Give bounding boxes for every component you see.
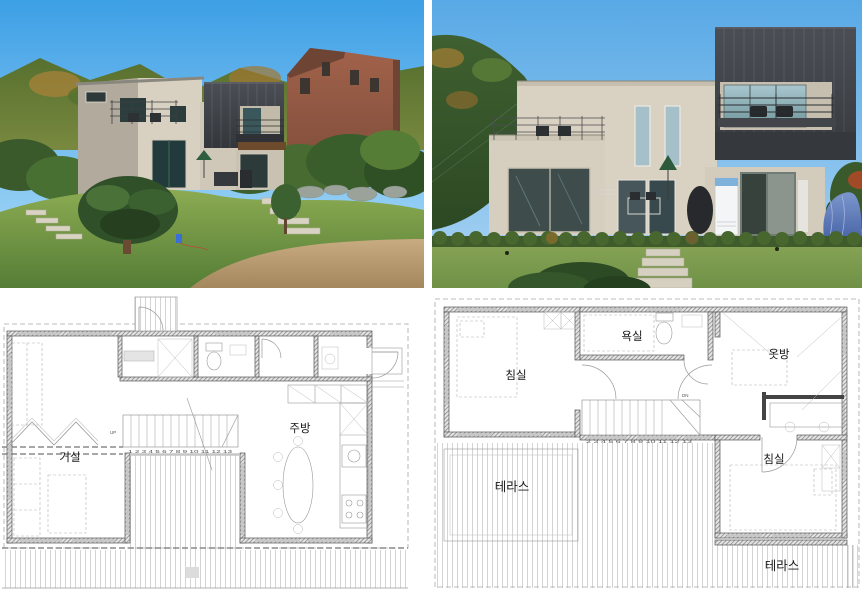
floor-plan-first: UP 1 2 3 4 5 6 7 8 9 10 11 12 13 거실 주방 — [0, 295, 424, 593]
room-label-bathroom: 욕실 — [621, 330, 642, 343]
photo-front-svg — [432, 0, 862, 288]
living-room: 거실 — [10, 343, 98, 536]
toilet-tank — [656, 313, 673, 321]
dining-table — [283, 447, 313, 523]
deck-areas — [2, 455, 408, 588]
bathroom: 욕실 — [584, 313, 702, 351]
toilet — [656, 322, 672, 344]
sink — [682, 315, 702, 327]
up-label: UP — [110, 430, 116, 435]
room-label-bedroom2: 침실 — [763, 453, 784, 466]
bedroom-right: 침실 — [730, 445, 840, 530]
room-label-living: 거실 — [59, 451, 80, 464]
floor-plan-first-svg: UP 1 2 3 4 5 6 7 8 9 10 11 12 13 거실 주방 — [0, 295, 424, 593]
room-label-terrace1: 테라스 — [495, 480, 530, 494]
room-label-bedroom1: 침실 — [505, 369, 526, 382]
photo-front-view — [432, 0, 862, 288]
floor-plan-second: DN 2 3 4 5 6 7 8 9 10 11 12 13 침실 욕실 — [432, 295, 862, 593]
desk — [770, 403, 844, 427]
room-label-terrace2: 테라스 — [765, 559, 800, 573]
washer — [322, 347, 338, 369]
sink — [230, 345, 246, 355]
dressing-room: 옷방 — [722, 312, 847, 432]
side-porch — [372, 348, 404, 387]
room-label-dressing: 옷방 — [768, 348, 790, 361]
floor-plan-second-svg: DN 2 3 4 5 6 7 8 9 10 11 12 13 침실 욕실 — [432, 295, 862, 593]
toilet — [207, 352, 221, 370]
house — [76, 78, 286, 196]
entry-porch — [135, 297, 177, 331]
bed — [730, 465, 836, 530]
display-fridge — [715, 178, 738, 235]
stair-numbers: 2 3 4 5 6 7 8 9 10 11 12 13 — [586, 439, 693, 444]
dn-label: DN — [682, 393, 689, 398]
small-window — [86, 92, 106, 102]
room-label-kitchen: 주방 — [289, 422, 311, 435]
bed — [457, 317, 517, 397]
stair-numbers: 1 2 3 4 5 6 7 8 9 10 11 12 13 — [128, 449, 233, 454]
wing-window — [508, 168, 590, 232]
door-opening — [367, 348, 373, 374]
photo-hillside-view — [0, 0, 424, 288]
toilet-tank — [206, 343, 222, 351]
tall-window — [635, 106, 650, 166]
photo-hillside-svg — [0, 0, 424, 288]
built-in-counter — [762, 392, 844, 420]
collage: UP 1 2 3 4 5 6 7 8 9 10 11 12 13 거실 주방 — [0, 0, 862, 593]
utility-band — [124, 339, 338, 377]
kitchen: 주방 — [274, 385, 369, 534]
bedroom-topleft: 침실 — [457, 312, 578, 397]
